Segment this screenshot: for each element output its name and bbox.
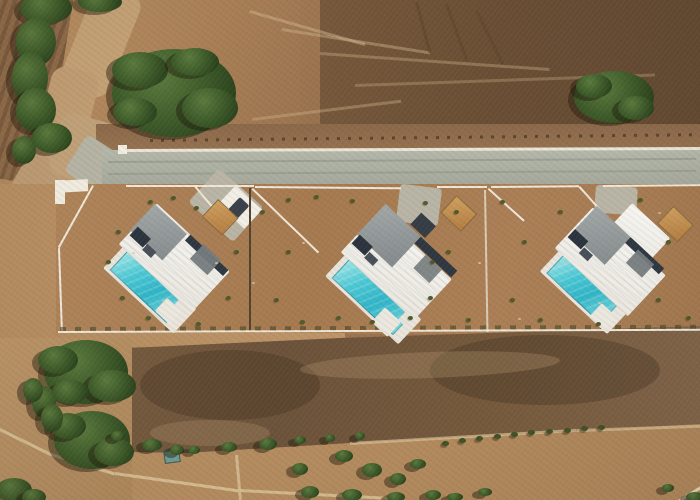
aerial-photograph <box>0 0 700 500</box>
vignette <box>0 0 700 500</box>
